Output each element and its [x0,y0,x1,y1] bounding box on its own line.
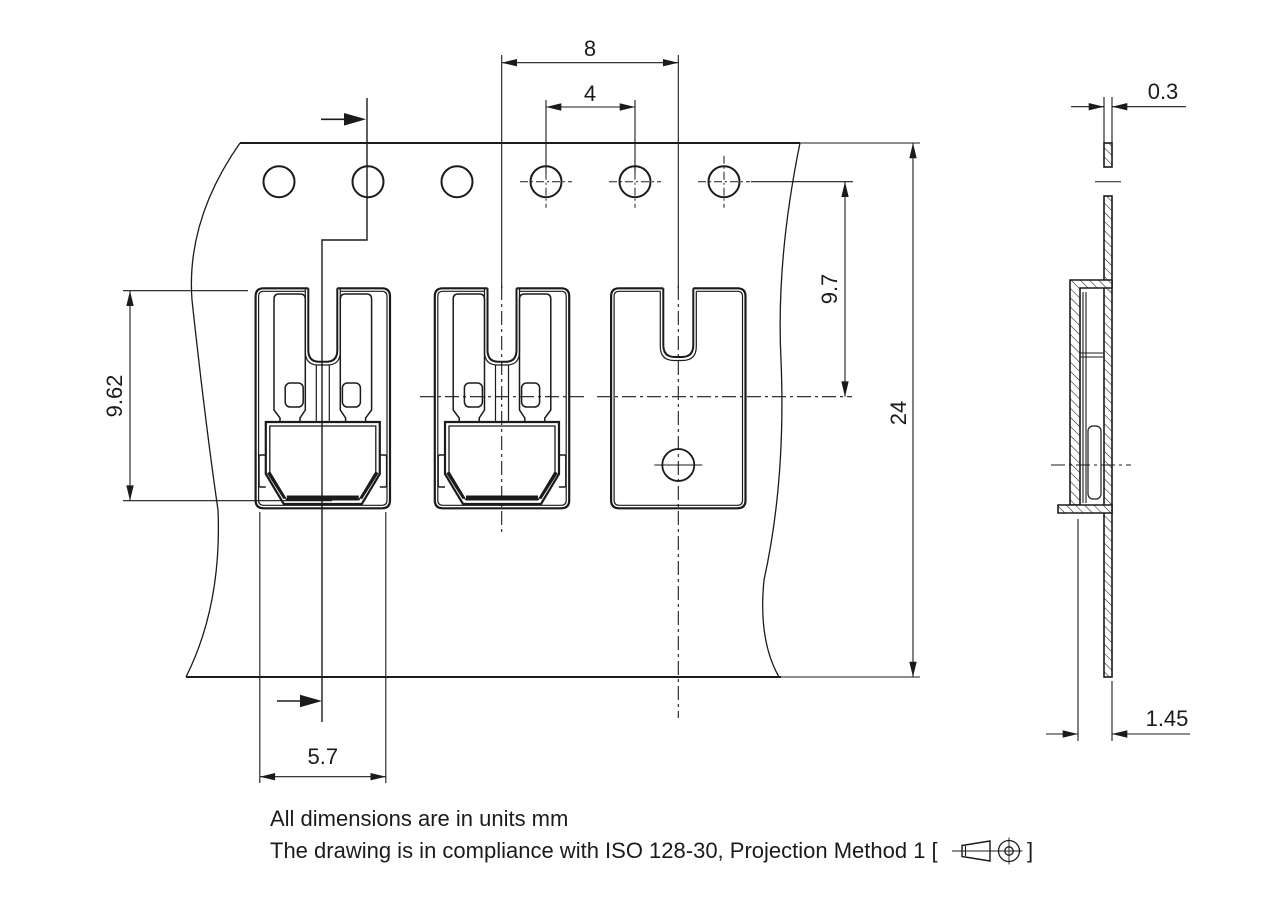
dim-label-component-pitch: 8 [584,36,596,61]
tape-section-lower [1104,196,1112,677]
tape-left-break-line [186,143,240,677]
notes: All dimensions are in units mm The drawi… [270,806,1033,865]
carrier-tape [186,143,800,677]
dim-component-pitch: 8 [502,36,679,66]
clip-section-slot-bottom [1080,353,1104,357]
dim-component-height: 9.62 [102,291,332,501]
dim-hole-to-component-center: 9.7 [751,182,853,397]
dim-label-tape-thickness: 0.3 [1148,79,1179,104]
clip-section-box-profile [1088,426,1101,499]
dim-label-component-bottom-width: 5.7 [308,744,339,769]
sprocket-hole [353,166,384,197]
dim-sprocket-hole-pitch: 4 [546,81,635,174]
side-view [1051,143,1131,677]
dim-label-component-height: 9.62 [102,375,127,418]
dim-tape-thickness: 0.3 [1071,79,1186,143]
dim-label-component-standoff: 1.45 [1146,706,1189,731]
note-standard-prefix: The drawing is in compliance with ISO 12… [270,838,938,863]
clip-section-bottom-flange [1058,505,1112,513]
dim-component-bottom-width: 5.7 [260,512,386,783]
dim-label-hole-to-component-center: 9.7 [817,274,842,305]
sprocket-hole [264,166,295,197]
note-units: All dimensions are in units mm [270,806,568,831]
first-angle-projection-icon [952,838,1023,865]
sprocket-hole [442,166,473,197]
front-view [186,55,852,722]
drawing-page: 8 4 9.62 9.7 24 [0,0,1280,905]
section-arrow-bottom [300,695,322,708]
clip-component-1 [256,288,390,508]
dimensions: 8 4 9.62 9.7 24 [102,36,1190,783]
dim-component-standoff: 1.45 [1046,519,1190,741]
dim-label-tape-width: 24 [886,401,911,425]
clip-section-inner-lines [1083,292,1086,503]
tape-section-upper [1104,143,1112,167]
dim-tape-width: 24 [781,143,920,677]
dim-label-sprocket-hole-pitch: 4 [584,81,596,106]
section-arrow-top [344,113,366,126]
tape-right-break-line [763,143,800,677]
note-standard-suffix: ] [1027,838,1033,863]
engineering-drawing-canvas: 8 4 9.62 9.7 24 [0,0,1280,905]
